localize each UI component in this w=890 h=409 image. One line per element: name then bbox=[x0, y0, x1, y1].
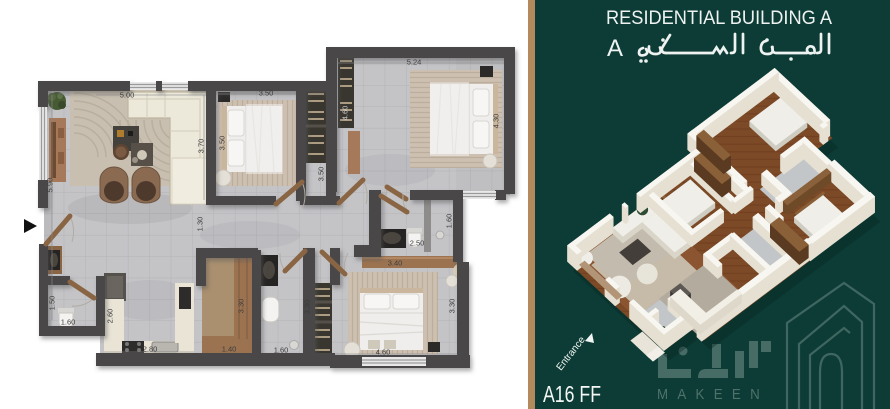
svg-text:3.30: 3.30 bbox=[448, 299, 457, 314]
svg-text:1.30: 1.30 bbox=[196, 217, 205, 232]
svg-text:5.00: 5.00 bbox=[120, 91, 135, 100]
svg-text:5.90: 5.90 bbox=[46, 178, 55, 193]
svg-text:3.30: 3.30 bbox=[237, 299, 246, 314]
svg-text:A: A bbox=[607, 35, 623, 62]
svg-text:1.60: 1.60 bbox=[445, 214, 454, 229]
svg-text:3.70: 3.70 bbox=[197, 139, 206, 154]
svg-text:3.50: 3.50 bbox=[218, 136, 227, 151]
svg-text:A16 FF: A16 FF bbox=[543, 381, 601, 407]
svg-text:1.50: 1.50 bbox=[48, 296, 57, 311]
svg-text:3.30: 3.30 bbox=[303, 300, 312, 315]
svg-text:4.60: 4.60 bbox=[376, 348, 391, 357]
svg-text:2.60: 2.60 bbox=[106, 309, 115, 324]
svg-text:4.60: 4.60 bbox=[341, 106, 350, 121]
svg-text:MAKEEN: MAKEEN bbox=[657, 386, 769, 403]
svg-text:3.50: 3.50 bbox=[259, 89, 274, 98]
svg-text:RESIDENTIAL BUILDING A: RESIDENTIAL BUILDING A bbox=[606, 8, 832, 29]
svg-text:1.60: 1.60 bbox=[61, 318, 76, 327]
svg-text:1.60: 1.60 bbox=[274, 346, 289, 355]
svg-text:1.40: 1.40 bbox=[222, 345, 237, 354]
svg-text:4.30: 4.30 bbox=[492, 114, 501, 129]
svg-text:2.80: 2.80 bbox=[143, 345, 158, 354]
svg-text:3.50: 3.50 bbox=[317, 167, 326, 182]
svg-text:2.50: 2.50 bbox=[410, 239, 425, 248]
svg-text:3.40: 3.40 bbox=[388, 259, 403, 268]
svg-text:5.24: 5.24 bbox=[407, 58, 422, 67]
